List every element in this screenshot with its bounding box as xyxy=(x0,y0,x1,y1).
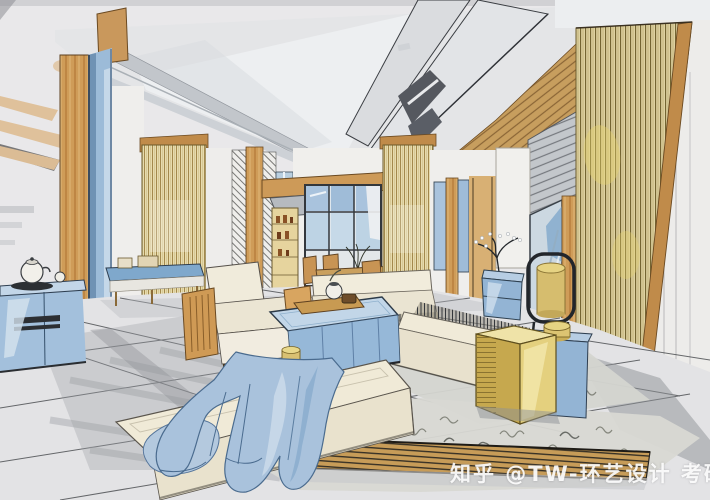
decor-box xyxy=(138,256,158,267)
wood-pilaster xyxy=(446,178,458,300)
marker-rendering xyxy=(0,0,710,500)
narrow-window xyxy=(458,180,469,272)
teapot-small xyxy=(342,294,356,303)
narrow-window xyxy=(434,182,446,270)
interior-sketch-photo: 知乎 @TW-环艺设计 考研 xyxy=(0,0,710,500)
lamp-shade xyxy=(537,268,565,314)
bowl xyxy=(55,272,65,282)
wood-armrest xyxy=(182,288,218,360)
gold-cabinet xyxy=(476,326,560,424)
display-shelf xyxy=(272,208,298,300)
decor-box xyxy=(118,258,132,268)
